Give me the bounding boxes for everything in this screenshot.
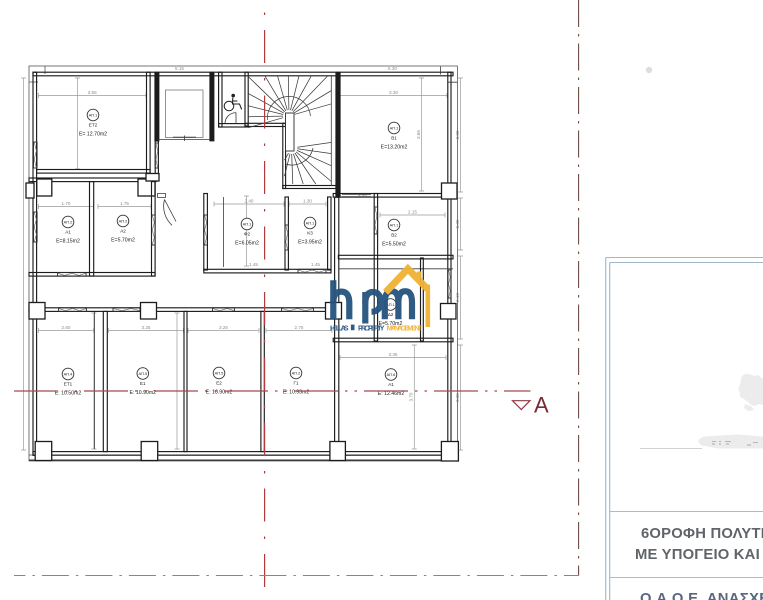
svg-text:Ε: 10.90m2: Ε: 10.90m2 xyxy=(130,390,157,396)
svg-text:Ε=5.70m2: Ε=5.70m2 xyxy=(111,238,135,244)
svg-text:ΜΕ ΥΠΟΓΕΙΟ ΚΑΙ ΟΦ: ΜΕ ΥΠΟΓΕΙΟ ΚΑΙ ΟΦ xyxy=(635,547,763,563)
svg-text:A: A xyxy=(534,393,549,418)
svg-text:ΑΠ.1: ΑΠ.1 xyxy=(390,223,399,228)
svg-text:Α1: Α1 xyxy=(388,382,394,387)
svg-text:Ε: 12.46m2: Ε: 12.46m2 xyxy=(378,391,405,397)
svg-text:Β1: Β1 xyxy=(391,136,397,141)
svg-text:1.70: 1.70 xyxy=(62,201,71,206)
svg-text:Ε=3.95m2: Ε=3.95m2 xyxy=(298,240,322,246)
svg-text:1.45: 1.45 xyxy=(249,262,258,267)
svg-text:HELLAS: HELLAS xyxy=(330,324,349,333)
svg-text:Β2: Β2 xyxy=(391,233,397,238)
svg-text:Φ2: Φ2 xyxy=(244,232,251,237)
svg-text:Δ2: Δ2 xyxy=(388,312,394,317)
svg-text:Γ1: Γ1 xyxy=(293,381,299,386)
svg-text:Ε= 12.70m2: Ε= 12.70m2 xyxy=(79,132,107,138)
svg-text:ΑΠ.1: ΑΠ.1 xyxy=(89,113,98,118)
svg-text:2.40: 2.40 xyxy=(245,198,254,203)
svg-text:Κ3: Κ3 xyxy=(307,231,313,236)
svg-text:PROPERTY: PROPERTY xyxy=(358,324,385,333)
svg-text:1.75: 1.75 xyxy=(120,201,129,206)
svg-text:Ε2: Ε2 xyxy=(216,381,222,386)
svg-text:3.70: 3.70 xyxy=(409,392,414,401)
svg-text:ΑΠ.1: ΑΠ.1 xyxy=(306,221,315,226)
svg-text:3.25: 3.25 xyxy=(142,325,151,330)
svg-text:Ε=6.05m2: Ε=6.05m2 xyxy=(235,241,259,247)
svg-text:2.75: 2.75 xyxy=(295,325,304,330)
svg-text:ΕΤ1: ΕΤ1 xyxy=(64,382,73,387)
svg-text:Ο.Α.Ο.Ε. ΑΝΑΣΧΕΔ: Ο.Α.Ο.Ε. ΑΝΑΣΧΕΔ xyxy=(640,591,763,600)
svg-text:ΑΠ.2: ΑΠ.2 xyxy=(292,371,301,376)
svg-text:Ε=5.50m2: Ε=5.50m2 xyxy=(382,242,406,248)
svg-text:Α1: Α1 xyxy=(65,230,71,235)
svg-text:3.55: 3.55 xyxy=(88,90,97,95)
svg-text:2.60: 2.60 xyxy=(62,325,71,330)
svg-text:3.30: 3.30 xyxy=(389,90,398,95)
svg-text:MANAGEMENT: MANAGEMENT xyxy=(387,324,423,333)
svg-text:ΑΠ.2: ΑΠ.2 xyxy=(119,219,128,224)
svg-text:Ε=8.15m2: Ε=8.15m2 xyxy=(56,239,80,245)
svg-text:Ε1: Ε1 xyxy=(140,381,146,386)
svg-text:1.30: 1.30 xyxy=(303,198,312,203)
svg-text:Ε: 10.50m2: Ε: 10.50m2 xyxy=(55,391,82,397)
svg-text:1.45: 1.45 xyxy=(311,262,320,267)
svg-text:3.25: 3.25 xyxy=(219,325,228,330)
svg-text:5.15: 5.15 xyxy=(175,66,184,71)
svg-text:ΑΠ.1: ΑΠ.1 xyxy=(243,222,252,227)
svg-text:6ΟΡΟΦΗ ΠΟΛΥΤΕΛ: 6ΟΡΟΦΗ ΠΟΛΥΤΕΛ xyxy=(641,526,763,542)
svg-text:ΑΠ.4: ΑΠ.4 xyxy=(64,372,73,377)
svg-text:ΑΠ.5: ΑΠ.5 xyxy=(215,371,224,376)
svg-text:ΕΤ2: ΕΤ2 xyxy=(89,123,98,128)
svg-text:3.35: 3.35 xyxy=(389,352,398,357)
svg-text:ΑΠ.5: ΑΠ.5 xyxy=(138,371,147,376)
svg-text:ΑΠ.6: ΑΠ.6 xyxy=(387,372,396,377)
svg-text:2.15: 2.15 xyxy=(408,209,417,214)
svg-text:Ε=13.20m2: Ε=13.20m2 xyxy=(381,145,408,151)
svg-text:ΑΠ.2: ΑΠ.2 xyxy=(64,220,73,225)
svg-text:Α2: Α2 xyxy=(120,229,126,234)
svg-text:5.30: 5.30 xyxy=(388,66,397,71)
svg-text:3.65: 3.65 xyxy=(416,130,421,139)
svg-text:ΑΠ.1: ΑΠ.1 xyxy=(390,126,399,131)
